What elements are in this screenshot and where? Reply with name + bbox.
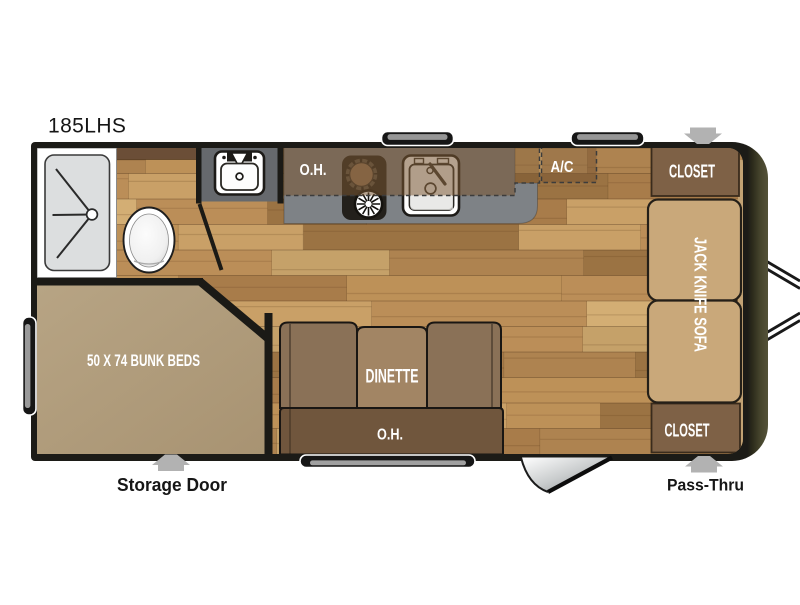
svg-text:A/C: A/C: [551, 159, 574, 176]
svg-text:JACK KNIFE SOFA: JACK KNIFE SOFA: [691, 237, 711, 352]
svg-text:CLOSET: CLOSET: [669, 162, 715, 182]
svg-text:Pass-Thru: Pass-Thru: [667, 476, 744, 495]
svg-text:DINETTE: DINETTE: [366, 367, 419, 388]
svg-text:Storage Door: Storage Door: [117, 474, 227, 495]
svg-text:O.H.: O.H.: [300, 162, 327, 179]
svg-text:CLOSET: CLOSET: [665, 421, 710, 441]
svg-text:185LHS: 185LHS: [48, 115, 126, 138]
svg-text:50 X 74 BUNK BEDS: 50 X 74 BUNK BEDS: [87, 351, 200, 370]
svg-text:O.H.: O.H.: [377, 427, 403, 444]
